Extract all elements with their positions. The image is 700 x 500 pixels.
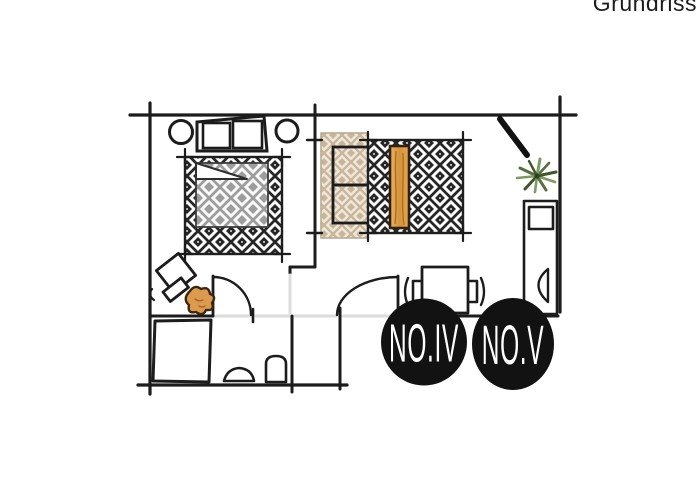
bedroom-left xyxy=(150,116,298,314)
wardrobe-mirror-icon xyxy=(524,201,557,314)
potted-plant-icon xyxy=(517,159,556,192)
toilet-icon xyxy=(266,356,286,382)
bedside-lamp-icon xyxy=(170,121,193,144)
patterned-rug-icon xyxy=(368,140,463,233)
sink-icon xyxy=(224,368,254,381)
bathroom xyxy=(153,320,286,382)
entry-area xyxy=(500,119,557,314)
shower-icon xyxy=(153,320,211,382)
door-right xyxy=(337,276,398,315)
bedroom-right xyxy=(307,132,471,241)
bedside-lamp-icon xyxy=(276,120,298,142)
entry-door-mark xyxy=(500,119,527,155)
room-badge-label-no5: NO.V xyxy=(482,315,545,377)
room-badge-label-no4: NO.IV xyxy=(389,313,459,374)
decor-blob-icon xyxy=(186,287,214,314)
floorplan-page: Grundriss xyxy=(0,0,700,500)
floorplan-drawing: NO.IV NO.V xyxy=(0,0,700,500)
pillow-icon xyxy=(203,123,230,148)
door-left xyxy=(213,276,251,315)
wood-bench-icon xyxy=(390,146,409,228)
pillow-icon xyxy=(233,121,262,148)
